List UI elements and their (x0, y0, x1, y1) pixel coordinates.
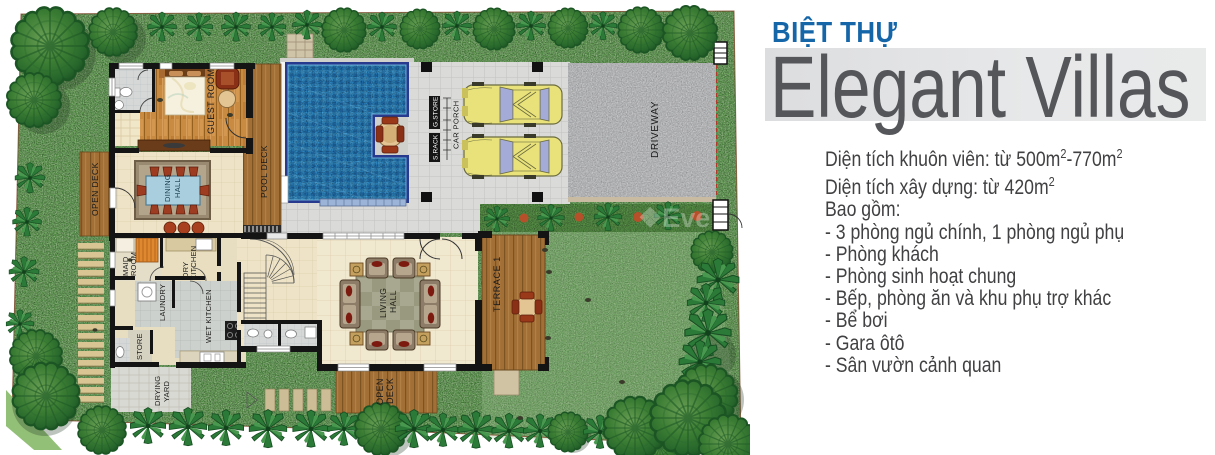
svg-text:DECK: DECK (385, 378, 395, 404)
svg-text:TERRACE 1: TERRACE 1 (492, 256, 502, 312)
svg-text:CAR PORCH: CAR PORCH (452, 100, 461, 149)
svg-text:DINING: DINING (163, 174, 172, 202)
svg-text:ROOM: ROOM (129, 252, 138, 276)
svg-text:OPEN: OPEN (375, 378, 385, 405)
svg-text:LIVING: LIVING (378, 288, 388, 318)
svg-text:❖Eve: ❖Eve (638, 203, 710, 233)
svg-text:DRIVEWAY: DRIVEWAY (650, 101, 661, 158)
svg-text:HALL: HALL (388, 290, 398, 313)
svg-text:WET KITCHEN: WET KITCHEN (204, 289, 213, 343)
svg-text:POOL DECK: POOL DECK (259, 145, 269, 198)
svg-text:LAUNDRY: LAUNDRY (158, 284, 167, 321)
svg-text:YARD: YARD (162, 381, 171, 402)
svg-text:OPEN DECK: OPEN DECK (90, 162, 100, 216)
svg-text:G.STORE: G.STORE (433, 96, 440, 127)
svg-text:KITCHEN: KITCHEN (189, 246, 198, 280)
svg-text:S.RACK: S.RACK (433, 134, 440, 160)
svg-text:STORE: STORE (135, 333, 144, 360)
svg-text:HALL: HALL (173, 178, 182, 198)
svg-text:DRYING: DRYING (153, 376, 162, 406)
svg-text:GUEST ROOM: GUEST ROOM (206, 69, 216, 134)
